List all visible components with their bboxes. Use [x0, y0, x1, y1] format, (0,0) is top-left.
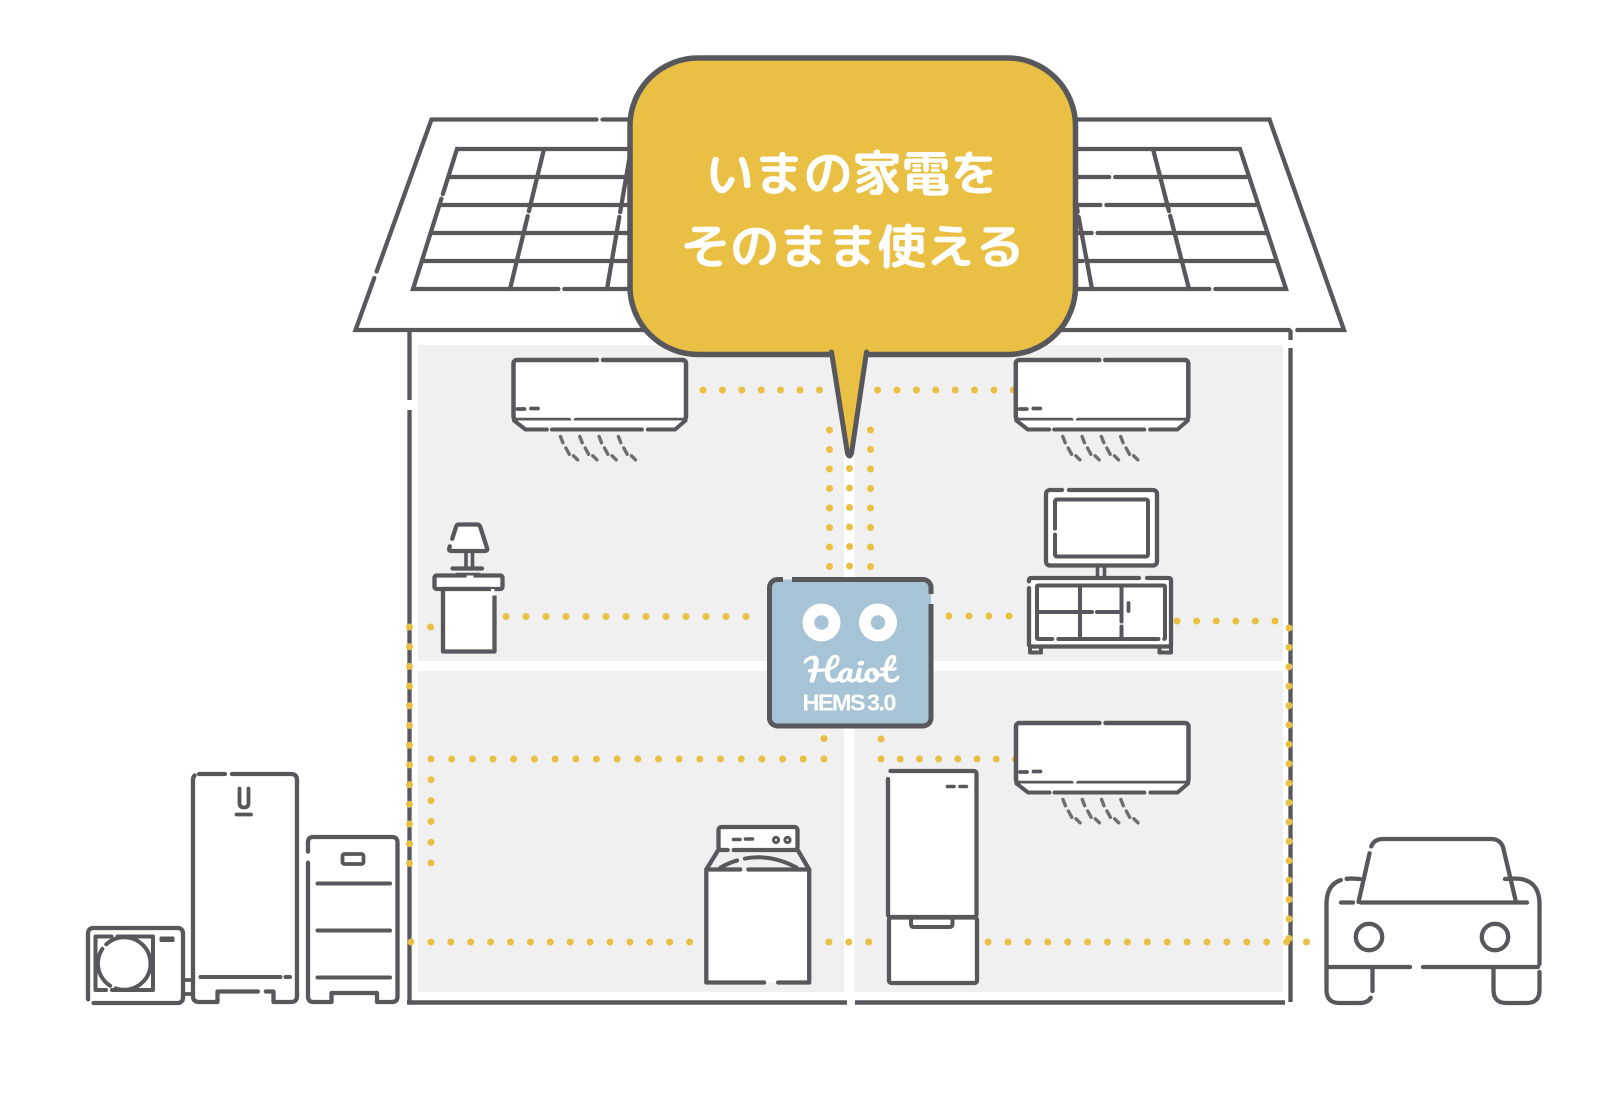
svg-text:HEMS 3.0: HEMS 3.0: [803, 690, 897, 716]
